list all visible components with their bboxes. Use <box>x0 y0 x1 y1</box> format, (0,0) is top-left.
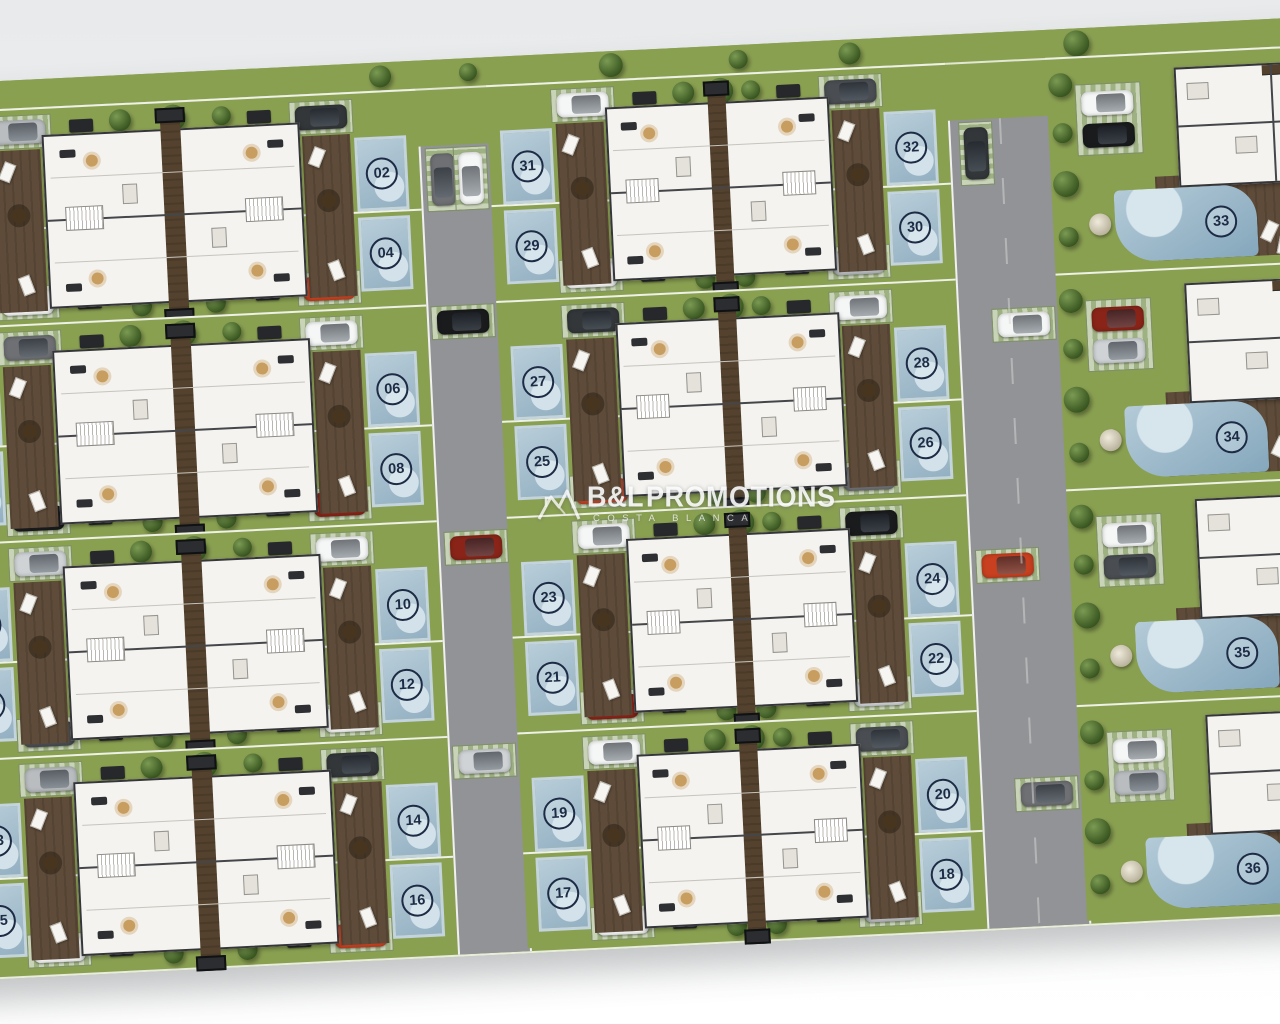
tree <box>703 728 726 751</box>
tree <box>1053 170 1080 197</box>
patio-table <box>585 396 601 412</box>
tree <box>1079 720 1104 745</box>
tree <box>838 42 861 65</box>
pool: 30 <box>887 189 943 265</box>
interior-wall <box>1210 762 1280 774</box>
storage-box <box>79 334 104 348</box>
dining-set <box>786 238 799 251</box>
dining-set <box>267 578 280 591</box>
sun-lounger <box>837 120 855 142</box>
parked-car <box>981 552 1034 579</box>
dining-set <box>643 127 656 140</box>
storage-box <box>653 522 678 536</box>
plot-badge: 21 <box>536 661 570 695</box>
dining-set <box>246 147 259 160</box>
plot-badge: 33 <box>1204 205 1238 239</box>
tree <box>1048 73 1073 98</box>
storage-box <box>90 550 115 564</box>
sofa <box>284 489 300 498</box>
parked-car <box>326 751 379 778</box>
entrance-canopy <box>186 754 217 770</box>
terrace <box>13 581 69 745</box>
parked-car <box>577 523 630 550</box>
plot-badge: 22 <box>919 642 953 676</box>
tree <box>772 727 792 747</box>
plot-badge: 27 <box>521 365 555 399</box>
plot-badge: 12 <box>390 668 424 702</box>
parked-car <box>14 550 67 577</box>
pool: 33 <box>1114 184 1259 263</box>
bed <box>1207 513 1230 531</box>
patio-table <box>321 193 337 209</box>
dining-set <box>675 775 688 788</box>
dining-set <box>670 676 683 689</box>
dining-set <box>812 768 825 781</box>
storage-box <box>268 541 293 555</box>
terrace <box>863 755 919 919</box>
parked-car <box>1091 305 1144 332</box>
bed <box>133 399 149 420</box>
house-floorplan <box>626 528 858 713</box>
sofa <box>798 113 814 122</box>
storage-box <box>808 731 833 745</box>
storage-box <box>257 326 282 340</box>
plot-badge: 31 <box>511 150 545 184</box>
dining-set <box>91 272 104 285</box>
parked-car <box>1081 90 1134 117</box>
dining-set <box>664 559 677 572</box>
housing-block: 05 07 06 08 <box>0 304 437 544</box>
parked-car <box>845 510 898 537</box>
dining-set <box>85 155 98 168</box>
plot-badge: 23 <box>532 581 566 615</box>
pool: 23 <box>521 560 577 636</box>
staircase <box>792 386 826 411</box>
plot-badge: 06 <box>376 372 410 406</box>
patio-table <box>861 383 877 399</box>
dining-set <box>277 794 290 807</box>
sofa <box>77 499 93 508</box>
tree <box>243 753 263 773</box>
dining-set <box>262 480 275 493</box>
sofa <box>627 256 643 265</box>
sofa <box>267 139 283 148</box>
terrace <box>577 553 633 717</box>
pool: 10 <box>375 567 431 643</box>
plot-badge: 30 <box>898 211 932 245</box>
tree <box>1084 770 1105 791</box>
parked-car <box>556 91 609 118</box>
dining-set <box>781 121 794 134</box>
bed <box>761 416 777 437</box>
sun-lounger <box>349 691 367 713</box>
pool: 07 <box>0 451 7 527</box>
dining-set <box>101 488 114 501</box>
sun-lounger <box>583 565 601 587</box>
interior-wall <box>1200 547 1280 559</box>
storage-box <box>278 757 303 771</box>
bed <box>675 156 691 177</box>
tree <box>1074 602 1101 629</box>
bed <box>222 443 238 464</box>
entrance-canopy <box>734 728 761 744</box>
dining-set <box>649 245 662 258</box>
bed <box>782 848 798 869</box>
sun-lounger <box>593 781 611 803</box>
tree <box>1058 227 1079 248</box>
sun-lounger <box>878 665 896 687</box>
sun-lounger <box>0 161 16 183</box>
sofa <box>294 705 310 714</box>
parked-car <box>3 335 56 362</box>
dining-set <box>680 892 693 905</box>
tree <box>1063 386 1090 413</box>
sun-lounger <box>338 475 356 497</box>
patio-table <box>606 828 622 844</box>
parked-car <box>24 766 77 793</box>
pool: 11 <box>0 667 17 743</box>
sun-lounger <box>18 275 36 297</box>
entrance-canopy <box>703 80 730 96</box>
house-floorplan <box>42 122 308 308</box>
brand-subtitle: COSTA BLANCA <box>593 514 836 524</box>
entrance-canopy <box>175 539 206 555</box>
sun-lounger <box>572 349 590 371</box>
sofa <box>87 715 103 724</box>
house-floorplan <box>52 338 318 524</box>
plot-badge: 35 <box>1225 636 1259 670</box>
plot-badge: 24 <box>916 562 950 596</box>
parked-car <box>1082 122 1135 149</box>
bed <box>707 804 723 825</box>
parked-car <box>963 127 990 180</box>
entrance-canopy <box>196 955 227 971</box>
tree <box>211 106 231 126</box>
storage-box <box>776 84 801 98</box>
storage-box <box>247 110 272 124</box>
parked-car <box>997 311 1050 338</box>
dining-set <box>818 885 831 898</box>
bed <box>1197 298 1220 316</box>
tree <box>119 324 142 347</box>
bed <box>1267 782 1280 800</box>
tree <box>1073 554 1094 575</box>
parked-car <box>824 78 877 105</box>
entrance-canopy <box>744 928 771 944</box>
pool: 08 <box>368 431 424 507</box>
interior-wall <box>1178 115 1280 127</box>
terrace <box>842 324 898 488</box>
housing-block: 23 21 24 22 <box>507 494 977 732</box>
bed <box>122 183 138 204</box>
sofa <box>273 274 289 283</box>
dining-set <box>123 919 136 932</box>
plot-badge: 02 <box>365 157 399 191</box>
staircase <box>256 412 295 438</box>
terrace <box>24 796 80 960</box>
terrace <box>312 350 368 514</box>
sofa <box>815 463 831 472</box>
pool: 13 <box>0 803 24 879</box>
pool: 34 <box>1124 400 1269 479</box>
interior-wall <box>1189 331 1280 343</box>
housing-block: 09 11 10 12 <box>0 520 447 760</box>
tree <box>222 322 242 342</box>
patio-table <box>871 599 887 615</box>
sofa <box>819 544 835 553</box>
tree <box>1063 338 1084 359</box>
tree <box>1090 874 1111 895</box>
entrance-canopy <box>165 323 196 339</box>
bed <box>686 372 702 393</box>
tree <box>1052 123 1073 144</box>
villa-plot: 33 <box>1045 43 1280 274</box>
patio-table <box>850 167 866 183</box>
sofa <box>805 248 821 257</box>
plot-badge: 20 <box>926 778 960 812</box>
housing-block: 31 29 32 30 <box>486 63 956 301</box>
sun-lounger <box>867 449 885 471</box>
plot-badge: 04 <box>369 237 403 271</box>
pool: 12 <box>379 647 435 723</box>
villa-plot: 34 <box>1056 259 1280 490</box>
terrace <box>0 149 48 313</box>
sun-lounger <box>329 578 347 600</box>
dining-set <box>283 911 296 924</box>
pool: 06 <box>365 351 421 427</box>
plot-badge: 25 <box>525 445 559 479</box>
sofa <box>91 796 107 805</box>
pool: 21 <box>525 639 581 715</box>
plot-badge: 13 <box>0 824 13 858</box>
storage-box <box>69 119 94 133</box>
housing-block: 13 15 14 16 <box>0 736 458 976</box>
sofa <box>621 122 637 131</box>
dining-set <box>659 460 672 473</box>
parked-car <box>855 725 908 752</box>
pool: 20 <box>915 757 971 833</box>
patio-table <box>342 625 358 641</box>
sofa <box>642 553 658 562</box>
staircase <box>277 844 316 870</box>
dining-set <box>797 454 810 467</box>
bed <box>232 659 248 680</box>
terrace <box>302 134 358 298</box>
pool: 22 <box>908 621 964 697</box>
dining-set <box>807 669 820 682</box>
bed <box>1186 82 1209 100</box>
staircase <box>647 610 681 635</box>
parked-car <box>458 748 511 775</box>
storage-box <box>643 307 668 321</box>
sun-lounger <box>9 377 27 399</box>
sofa <box>305 921 321 930</box>
sofa <box>60 149 76 158</box>
dining-set <box>96 370 109 383</box>
villa-plot: 36 <box>1077 690 1280 921</box>
sofa <box>826 679 842 688</box>
sofa <box>830 760 846 769</box>
pool: 02 <box>354 135 410 211</box>
plot-badge: 17 <box>546 877 580 911</box>
plot-badge: 36 <box>1236 852 1270 886</box>
roof-edge <box>1272 275 1280 291</box>
house-floorplan <box>605 97 837 282</box>
house-floorplan <box>615 312 847 497</box>
pool: 28 <box>894 325 950 401</box>
pool: 27 <box>510 344 566 420</box>
patio-table <box>352 840 368 856</box>
terrace <box>556 122 612 286</box>
tree <box>1079 658 1100 679</box>
storage-box <box>787 300 812 314</box>
plot-badge: 32 <box>894 131 928 165</box>
sofa <box>277 355 293 364</box>
tree <box>728 49 748 69</box>
parked-car <box>450 534 503 561</box>
left-block-column: 01 03 02 04 <box>0 89 458 979</box>
sofa <box>836 895 852 904</box>
parked-car <box>316 536 369 563</box>
terrace <box>3 365 59 529</box>
pool: 35 <box>1135 615 1280 694</box>
staircase <box>813 818 847 843</box>
housing-block: 01 03 02 04 <box>0 89 426 329</box>
bed <box>143 615 159 636</box>
villa-floorplan <box>1174 58 1280 188</box>
plot-badge: 08 <box>380 452 414 486</box>
brand-name-bold: B&L <box>587 483 644 511</box>
terrace <box>587 769 643 933</box>
tree <box>1069 504 1094 529</box>
parasol <box>1110 644 1133 667</box>
parked-car <box>1114 769 1167 796</box>
patio-table <box>331 409 347 425</box>
bed <box>772 632 788 653</box>
sofa <box>648 688 664 697</box>
parked-car <box>305 320 358 347</box>
tree <box>598 53 623 78</box>
dining-set <box>256 363 269 376</box>
sofa <box>659 903 675 912</box>
plot-badge: 09 <box>0 609 2 643</box>
staircase <box>657 826 691 851</box>
tree <box>751 296 771 316</box>
plot-badge: 19 <box>543 797 577 831</box>
parked-car <box>588 739 641 766</box>
tree <box>459 63 478 82</box>
staircase <box>86 637 125 663</box>
sun-lounger <box>328 260 346 282</box>
tree <box>369 65 392 88</box>
sun-lounger <box>340 793 358 815</box>
pool: 09 <box>0 587 13 663</box>
parasol <box>1099 429 1122 452</box>
parked-car <box>1103 553 1156 580</box>
sofa <box>288 570 304 579</box>
tree <box>1069 442 1090 463</box>
terrace <box>323 565 379 729</box>
terrace <box>852 540 908 704</box>
villa-floorplan <box>1184 273 1280 403</box>
patio-table <box>22 424 38 440</box>
dining-set <box>106 586 119 599</box>
bed <box>751 201 767 222</box>
patio-table <box>882 814 898 830</box>
parked-car <box>1093 337 1146 364</box>
plot-badge: 11 <box>0 689 6 723</box>
tree <box>1058 288 1083 313</box>
sun-lounger <box>848 336 866 358</box>
pool: 19 <box>532 775 588 851</box>
patio-table <box>574 181 590 197</box>
parked-car <box>1102 521 1155 548</box>
sofa <box>70 365 86 374</box>
watermark: B&LPROMOTIONS COSTA BLANCA <box>536 484 836 524</box>
sun-lounger <box>30 808 48 830</box>
brand-text: B&LPROMOTIONS COSTA BLANCA <box>587 484 836 524</box>
sofa <box>66 284 82 293</box>
parked-car <box>437 308 490 335</box>
bed <box>1235 135 1258 153</box>
plot-badge: 14 <box>397 804 431 838</box>
bed <box>1246 351 1269 369</box>
entrance-canopy <box>154 107 185 123</box>
housing-block: 19 17 20 18 <box>517 710 987 948</box>
interior-wall <box>1269 65 1277 181</box>
sofa <box>98 931 114 940</box>
staircase <box>636 394 670 419</box>
sun-lounger <box>308 146 326 168</box>
brand-name: PROMOTIONS <box>646 483 836 511</box>
parasol <box>1120 860 1143 883</box>
sofa <box>652 769 668 778</box>
sun-lounger <box>562 134 580 156</box>
plot-badge: 16 <box>401 884 435 918</box>
sun-lounger <box>581 247 599 269</box>
staircase <box>245 197 284 223</box>
terrace <box>831 108 887 272</box>
tree <box>1084 818 1111 845</box>
sofa <box>638 472 654 481</box>
storage-box <box>664 738 689 752</box>
parasol <box>1089 213 1112 236</box>
entrance-canopy <box>713 296 740 312</box>
dining-set <box>117 802 130 815</box>
tree <box>741 80 761 100</box>
tree <box>129 540 152 563</box>
pool: 14 <box>386 782 442 858</box>
sun-lounger <box>359 907 377 929</box>
plot-badge: 18 <box>930 858 964 892</box>
bed <box>154 831 170 852</box>
sun-lounger <box>857 234 875 256</box>
pool: 32 <box>883 109 939 185</box>
parked-car <box>1112 737 1165 764</box>
villa-column: 33 34 <box>1045 43 1280 924</box>
tree <box>108 109 131 132</box>
patio-table <box>43 855 59 871</box>
sun-lounger <box>602 679 620 701</box>
sun-lounger <box>613 894 631 916</box>
plot-badge: 26 <box>909 426 943 460</box>
storage-box <box>100 766 125 780</box>
dining-set <box>273 695 286 708</box>
sofa <box>631 337 647 346</box>
pool: 05 <box>0 371 3 447</box>
villa-floorplan <box>1205 705 1280 835</box>
brand-logo-icon <box>536 485 582 523</box>
